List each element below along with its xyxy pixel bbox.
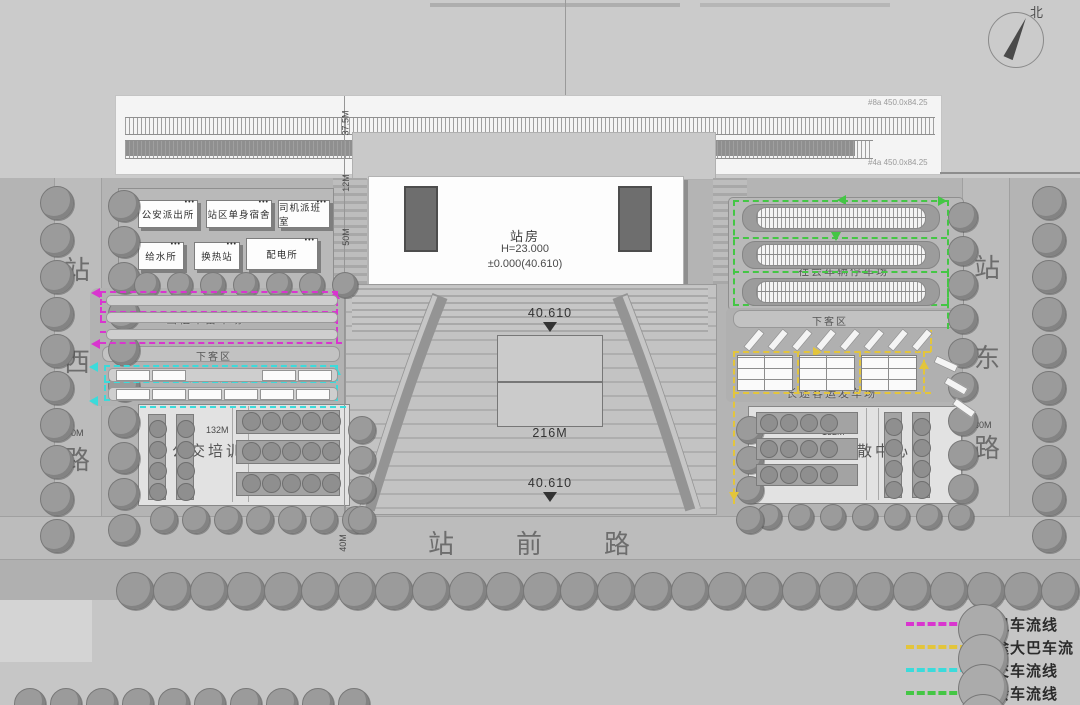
tree <box>40 482 74 516</box>
block-tree <box>780 440 798 458</box>
block-tree <box>913 439 931 457</box>
front-road-char-2: 前 <box>516 524 542 561</box>
plaza-feature-north <box>497 335 603 382</box>
block-tree <box>800 440 818 458</box>
platform-label-bottom: #4a 450.0x84.25 <box>868 158 928 167</box>
plaza-length: 216M <box>498 426 602 440</box>
dim-12: 12M <box>341 174 351 192</box>
bus-bay <box>116 389 150 400</box>
block-tree <box>760 414 778 432</box>
dim-132-left: 132M <box>206 425 229 435</box>
building-label: 配电所 <box>266 247 298 261</box>
building-heat-exchange: 换热站 <box>194 242 240 270</box>
building-label: 换热站 <box>201 249 233 263</box>
dim-chain-line <box>344 96 345 514</box>
tree <box>190 572 228 610</box>
tree <box>708 572 746 610</box>
building-water-supply: 给水所 <box>138 242 184 270</box>
building-label: 司机派班室 <box>279 200 329 228</box>
flow-line <box>733 392 931 394</box>
block-tree <box>282 442 301 461</box>
dropoff-west-label: 下客区 <box>196 348 232 363</box>
tree <box>948 474 978 504</box>
tree <box>820 504 846 530</box>
tree <box>948 504 974 530</box>
tree <box>1032 334 1066 368</box>
flow-line <box>733 351 931 353</box>
plaza-elev-top: 40.610 <box>498 306 602 320</box>
tree <box>40 297 74 331</box>
flow-arrow-icon <box>86 288 100 298</box>
block-tree <box>322 474 341 493</box>
tree <box>40 223 74 257</box>
block-tree <box>780 466 798 484</box>
tree <box>948 270 978 300</box>
tree <box>348 506 376 534</box>
survey-annotation <box>700 3 890 7</box>
block-tree <box>885 418 903 436</box>
building-label: 给水所 <box>145 249 177 263</box>
lane-strip <box>106 295 338 306</box>
bus-bay <box>188 389 222 400</box>
building-label: 站区单身宿舍 <box>207 207 270 221</box>
tree <box>150 506 178 534</box>
bus-bay <box>152 370 186 381</box>
tree <box>1032 408 1066 442</box>
tree <box>246 506 274 534</box>
north-label: 北 <box>1030 2 1043 21</box>
tree <box>153 572 191 610</box>
flow-line <box>100 291 102 321</box>
block-tree <box>149 462 167 480</box>
tree <box>893 572 931 610</box>
tree <box>1032 297 1066 331</box>
tree <box>930 572 968 610</box>
tree <box>40 445 74 479</box>
bus-bay <box>260 389 294 400</box>
bus-bay <box>224 389 258 400</box>
tree <box>338 572 376 610</box>
tree <box>40 519 74 553</box>
tree <box>597 572 635 610</box>
block-tree <box>149 420 167 438</box>
tree <box>108 442 140 474</box>
tree <box>348 446 376 474</box>
tree <box>40 334 74 368</box>
block-tree <box>913 418 931 436</box>
block-tree <box>885 439 903 457</box>
block-tree <box>780 414 798 432</box>
tree <box>948 440 978 470</box>
flow-line <box>733 392 735 504</box>
tree <box>301 572 339 610</box>
station-elevation: ±0.000(40.610) <box>425 258 625 270</box>
tree <box>348 416 376 444</box>
block-tree <box>177 441 195 459</box>
dim-50: 50M <box>341 228 351 246</box>
block-tree <box>913 460 931 478</box>
block-tree <box>262 442 281 461</box>
tree <box>1032 223 1066 257</box>
block-tree <box>302 474 321 493</box>
block-tree <box>820 466 838 484</box>
bus-bay <box>298 370 332 381</box>
tree <box>634 572 672 610</box>
flow-arrow-icon <box>84 396 98 406</box>
tree <box>1032 260 1066 294</box>
tree <box>671 572 709 610</box>
flow-line <box>100 342 342 344</box>
flow-line <box>100 291 338 293</box>
flow-line <box>140 406 346 408</box>
block-tree <box>177 462 195 480</box>
tree <box>40 186 74 220</box>
building-driver-dispatch: 司机派班室 <box>278 200 330 228</box>
block-tree <box>242 412 261 431</box>
bus-bay <box>262 370 296 381</box>
tree <box>819 572 857 610</box>
flow-arrow-icon <box>84 362 98 372</box>
tree <box>227 572 265 610</box>
tree <box>523 572 561 610</box>
flow-line <box>947 271 949 329</box>
tree <box>782 572 820 610</box>
tree <box>1032 371 1066 405</box>
block-tree <box>177 420 195 438</box>
coach-bay-block <box>861 355 917 391</box>
block-tree <box>242 442 261 461</box>
tree <box>1032 445 1066 479</box>
bus-bay <box>152 389 186 400</box>
tree <box>108 478 140 510</box>
bus-bay <box>296 389 330 400</box>
tree <box>278 506 306 534</box>
block-tree <box>322 412 341 431</box>
flow-arrow-icon <box>938 196 952 206</box>
legend-dash-2 <box>906 668 968 672</box>
block-tree <box>262 412 281 431</box>
tree <box>948 304 978 334</box>
bus-bay <box>116 370 150 381</box>
block-tree <box>302 412 321 431</box>
parking-stalls <box>756 281 926 303</box>
tree <box>560 572 598 610</box>
block-tree <box>262 474 281 493</box>
block-tree <box>760 466 778 484</box>
coach-bay-block <box>799 355 855 391</box>
front-road-char-1: 站 <box>428 524 454 561</box>
block-tree <box>820 414 838 432</box>
tree <box>264 572 302 610</box>
tree <box>310 506 338 534</box>
block-tree <box>282 412 301 431</box>
platform-label-top: #8a 450.0x84.25 <box>868 98 928 107</box>
building-dormitory: 站区单身宿舍 <box>206 200 272 228</box>
front-road-char-3: 路 <box>604 524 630 561</box>
flow-line <box>104 365 106 401</box>
station-approach <box>352 132 716 180</box>
tree <box>375 572 413 610</box>
block-tree <box>885 481 903 499</box>
south-west-lot <box>0 600 92 662</box>
coach-bay-block <box>737 355 793 391</box>
tree <box>108 190 140 222</box>
tree <box>40 371 74 405</box>
tree <box>116 572 154 610</box>
tree <box>736 506 764 534</box>
plaza-elev-bottom: 40.610 <box>498 476 602 490</box>
dim-37-5: 37.5M <box>341 110 351 135</box>
block-tree <box>760 440 778 458</box>
tree <box>214 506 242 534</box>
plaza-feature-south <box>497 382 603 427</box>
tree <box>108 406 140 438</box>
tree <box>412 572 450 610</box>
flow-line <box>733 271 947 273</box>
block-tree <box>820 440 838 458</box>
tree <box>108 514 140 546</box>
flow-line <box>733 200 735 304</box>
east-road-char-3: 路 <box>974 428 1000 465</box>
flow-arrow-icon <box>86 339 100 349</box>
dropoff-east-label: 下客区 <box>812 313 848 328</box>
block-tree <box>302 442 321 461</box>
tree <box>182 506 210 534</box>
tree <box>948 236 978 266</box>
block-tree <box>177 483 195 501</box>
block-tree <box>800 466 818 484</box>
site-plan: #8a 450.0x84.25 #4a 450.0x84.25 北 站房 H=2… <box>0 0 1080 705</box>
block-tree <box>242 474 261 493</box>
tree <box>745 572 783 610</box>
survey-annotation <box>430 3 680 7</box>
building-power-distribution: 配电所 <box>246 238 318 270</box>
station-height: H=23.000 <box>425 243 625 255</box>
tree <box>884 504 910 530</box>
tree <box>856 572 894 610</box>
tree <box>1004 572 1042 610</box>
tree <box>486 572 524 610</box>
tree <box>40 408 74 442</box>
tree <box>449 572 487 610</box>
east-road-char-1: 站 <box>974 248 1000 285</box>
lane-strip <box>106 312 338 323</box>
tree <box>40 260 74 294</box>
flow-arrow-icon <box>729 492 739 506</box>
parking-stalls <box>756 244 926 266</box>
tree <box>1032 519 1066 553</box>
tree <box>1032 186 1066 220</box>
block-tree <box>800 414 818 432</box>
elev-marker-top <box>543 322 557 339</box>
block-tree <box>282 474 301 493</box>
tree <box>1041 572 1079 610</box>
lane-strip <box>106 329 338 340</box>
block-tree <box>322 442 341 461</box>
block-tree <box>885 460 903 478</box>
elev-marker-bottom <box>543 492 557 509</box>
block-tree <box>149 483 167 501</box>
flow-line <box>733 351 735 392</box>
tree <box>108 226 140 258</box>
block-tree <box>149 441 167 459</box>
building-police-station: 公安派出所 <box>138 200 198 228</box>
flow-arrow-icon <box>919 355 929 369</box>
flow-line <box>104 365 336 367</box>
building-label: 公安派出所 <box>142 207 195 221</box>
tree <box>1032 482 1066 516</box>
tree <box>348 476 376 504</box>
east-road-char-2: 东 <box>974 338 1000 375</box>
rail-edge-line <box>940 172 1080 174</box>
dim-40: 40M <box>338 534 348 552</box>
legend-dash-1 <box>906 645 968 649</box>
parking-stalls <box>756 207 926 229</box>
tree <box>852 504 878 530</box>
tree <box>916 504 942 530</box>
tree <box>948 202 978 232</box>
block-tree <box>913 481 931 499</box>
tree <box>788 504 814 530</box>
